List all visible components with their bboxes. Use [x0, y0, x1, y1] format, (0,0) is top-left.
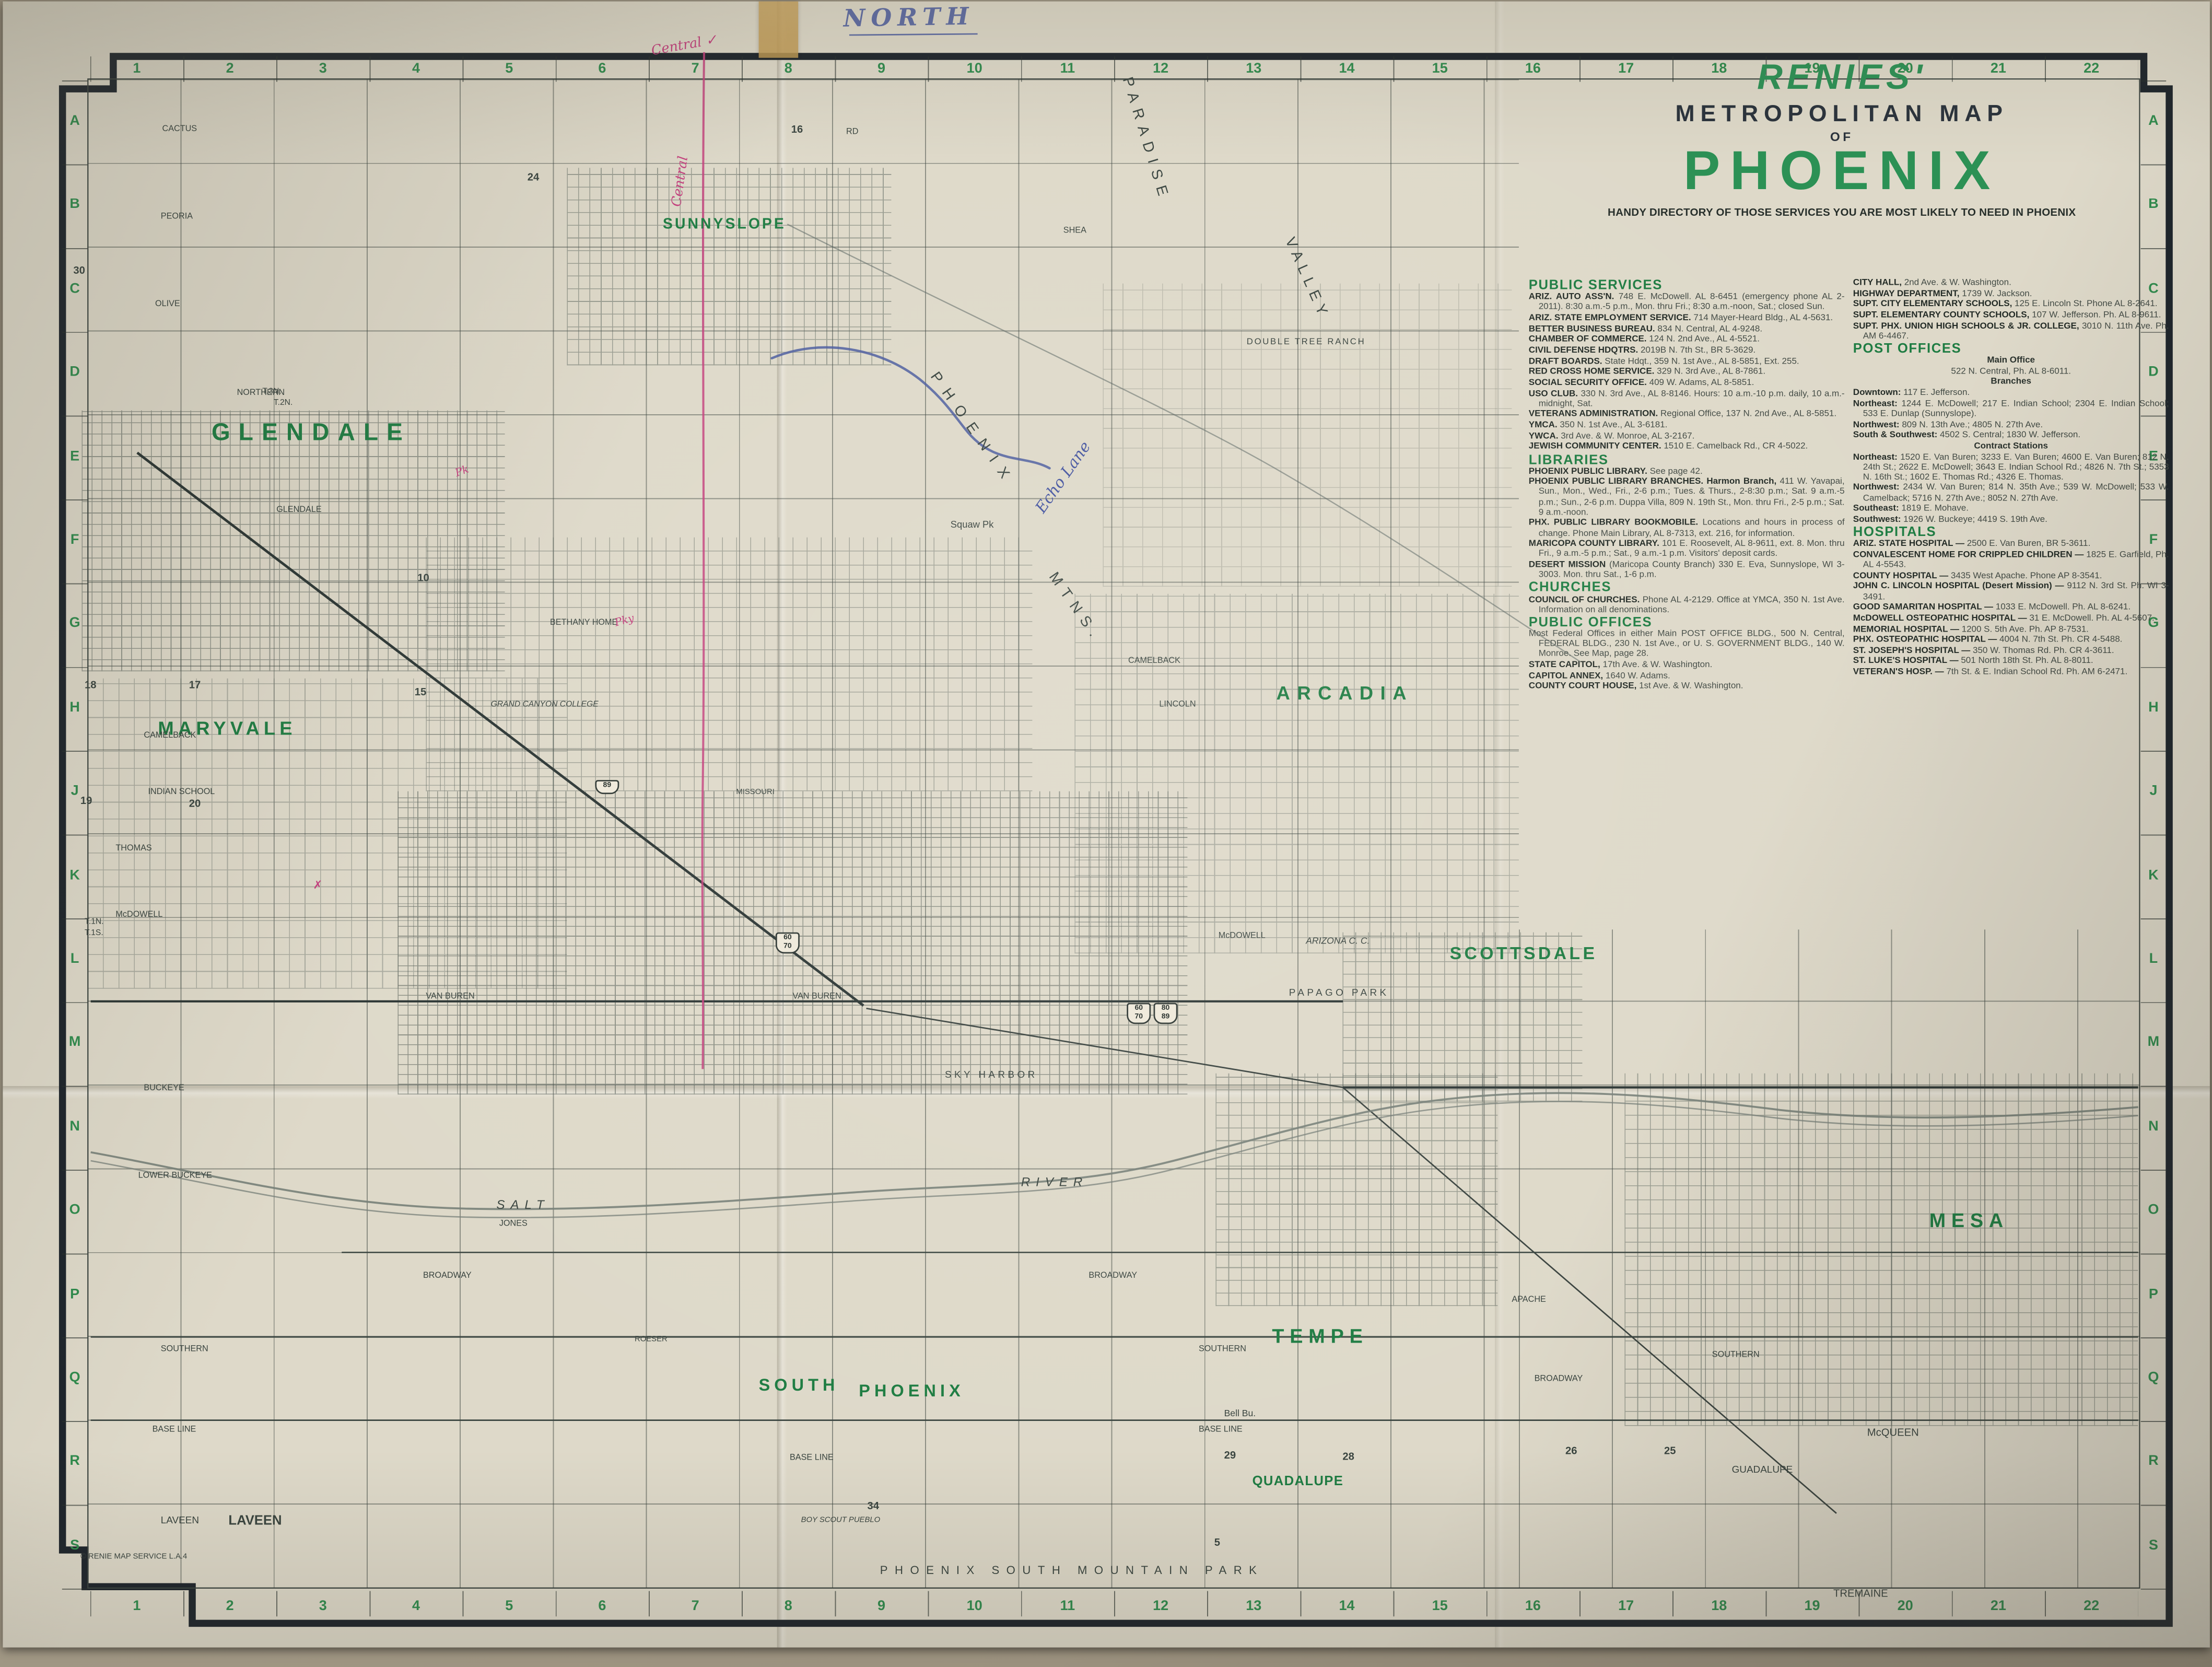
- street-label-lower-buckeye: LOWER BUCKEYE: [138, 1172, 212, 1181]
- grid-letter-right-H: H: [2148, 700, 2159, 716]
- directory-entry: Southwest: 1926 W. Buckeye; 4419 S. 19th…: [1853, 515, 2169, 524]
- street-label-van-buren: VAN BUREN: [792, 993, 841, 1001]
- grid-letter-right-M: M: [2148, 1035, 2160, 1051]
- section-number-17: 17: [189, 679, 201, 691]
- grid-number-top-2: 2: [226, 61, 234, 77]
- directory-section-title: PUBLIC OFFICES: [1529, 617, 1845, 627]
- grid-letter-right-O: O: [2148, 1203, 2159, 1218]
- directory-entry: Most Federal Offices in either Main POST…: [1529, 629, 1845, 659]
- section-number-28: 28: [1342, 1450, 1354, 1463]
- grid-letter-left-Q: Q: [69, 1370, 80, 1386]
- blue-hand-drawn-route: [772, 347, 1050, 468]
- street-label-cactus: CACTUS: [162, 125, 197, 134]
- street-label-buckeye: BUCKEYE: [144, 1085, 184, 1093]
- section-number-10: 10: [417, 572, 429, 584]
- grid-letter-left-P: P: [70, 1287, 79, 1302]
- grid-letter-left-K: K: [69, 868, 80, 883]
- grid-letter-left-A: A: [69, 113, 80, 129]
- directory-entry: CIVIL DEFENSE HDQTRS. 2019B N. 7th St., …: [1529, 345, 1845, 355]
- directory-entry: MEMORIAL HOSPITAL — 1200 S. 5th Ave. Ph.…: [1853, 624, 2169, 634]
- city-label-tempe: TEMPE: [1272, 1324, 1368, 1347]
- directory-entry: Northeast: 1520 E. Van Buren; 3233 E. Va…: [1853, 452, 2169, 482]
- feature-label-bell-bu-: Bell Bu.: [1224, 1409, 1256, 1419]
- section-number-29: 29: [1224, 1449, 1236, 1461]
- city-label-quadalupe: QUADALUPE: [1253, 1474, 1344, 1490]
- section-number-34: 34: [868, 1499, 880, 1512]
- directory-entry: ST. LUKE'S HOSPITAL — 501 North 18th St.…: [1853, 657, 2169, 667]
- directory-entry: Northwest: 809 N. 13th Ave.; 4805 N. 27t…: [1853, 419, 2169, 429]
- city-label-phoenix: PHOENIX: [859, 1381, 965, 1401]
- feature-label-phoenix-south-mountain-park: PHOENIX SOUTH MOUNTAIN PARK: [880, 1564, 1264, 1577]
- feature-label-squaw-pk: Squaw Pk: [951, 520, 994, 530]
- grid-number-bottom-9: 9: [877, 1599, 885, 1614]
- brand-name: RENIES': [1523, 58, 2160, 99]
- directory-entry: South & Southwest: 4502 S. Central; 1830…: [1853, 430, 2169, 440]
- grid-number-bottom-10: 10: [967, 1599, 982, 1614]
- grid-number-bottom-18: 18: [1711, 1599, 1727, 1614]
- grid-number-top-7: 7: [692, 61, 699, 77]
- directory-entry: CONVALESCENT HOME FOR CRIPPLED CHILDREN …: [1853, 550, 2169, 570]
- street-label-broadway: BROADWAY: [423, 1272, 472, 1280]
- directory-entry: DRAFT BOARDS. State Hdqt., 359 N. 1st Av…: [1529, 356, 1845, 366]
- highway-shield-60-70: 6070: [1127, 1003, 1151, 1024]
- directory-entry: VETERANS ADMINISTRATION. Regional Office…: [1529, 410, 1845, 419]
- directory-entry: McDOWELL OSTEOPATHIC HOSPITAL — 31 E. Mc…: [1853, 613, 2169, 623]
- city-label-sunnyslope: SUNNYSLOPE: [663, 216, 786, 232]
- pink-x-mark: ✗: [313, 879, 322, 891]
- title-block: RENIES' METROPOLITAN MAP OF PHOENIX HAND…: [1523, 58, 2160, 219]
- feature-label-papago-park: PAPAGO PARK: [1289, 989, 1389, 999]
- left-margin-ticks: [62, 80, 88, 1590]
- grid-letter-left-C: C: [69, 281, 80, 297]
- feature-label-sky-harbor: SKY HARBOR: [945, 1070, 1038, 1080]
- street-label-bethany-home: BETHANY HOME: [550, 619, 617, 627]
- grid-number-bottom-14: 14: [1339, 1599, 1354, 1614]
- section-number-26: 26: [1565, 1444, 1577, 1457]
- salt-river-south-bank: [91, 1101, 2138, 1217]
- street-label-t-2n-: T.2N.: [274, 399, 293, 407]
- feature-label-tremaine: TREMAINE: [1833, 1587, 1888, 1600]
- grid-letter-right-N: N: [2148, 1119, 2159, 1135]
- grid-letter-right-R: R: [2148, 1454, 2159, 1470]
- street-label-base-line: BASE LINE: [153, 1426, 196, 1435]
- grid-number-bottom-4: 4: [412, 1599, 420, 1614]
- city-label-arcadia: ARCADIA: [1277, 683, 1414, 704]
- directory-entry: PHOENIX PUBLIC LIBRARY. See page 42.: [1529, 467, 1845, 476]
- copyright-note: © RENIE MAP SERVICE L.A.4: [80, 1553, 187, 1561]
- directory-entry: Northwest: 2434 W. Van Buren; 814 N. 35t…: [1853, 483, 2169, 504]
- directory-entry: STATE CAPITOL, 17th Ave. & W. Washington…: [1529, 660, 1845, 670]
- directory-entry: PHX. PUBLIC LIBRARY BOOKMOBILE. Location…: [1529, 518, 1845, 539]
- directory-subtitle: HANDY DIRECTORY OF THOSE SERVICES YOU AR…: [1523, 206, 2160, 218]
- feature-label-mcqueen: McQUEEN: [1867, 1426, 1919, 1439]
- masking-tape: [759, 2, 799, 58]
- directory-entry: SUPT. ELEMENTARY COUNTY SCHOOLS, 107 W. …: [1853, 310, 2169, 320]
- north-handwriting: NORTH: [843, 3, 975, 33]
- grid-letter-right-S: S: [2149, 1538, 2158, 1554]
- grid-number-bottom-12: 12: [1153, 1599, 1168, 1614]
- directory-entry: YMCA. 350 N. 1st Ave., AL 3-6181.: [1529, 421, 1845, 430]
- feature-label-double-tree-ranch: DOUBLE TREE RANCH: [1247, 337, 1366, 347]
- title-line1: METROPOLITAN MAP: [1523, 101, 2160, 128]
- salt-river-north-bank: [91, 1093, 2138, 1209]
- directory-section-title: POST OFFICES: [1853, 344, 2169, 354]
- grid-number-top-4: 4: [412, 61, 420, 77]
- grid-number-top-13: 13: [1246, 61, 1261, 77]
- map-linework: [3, 2, 2209, 1648]
- bottom-margin-ticks: [90, 1591, 2138, 1617]
- street-label-southern: SOUTHERN: [161, 1346, 208, 1354]
- directory-entry: RED CROSS HOME SERVICE. 329 N. 3rd Ave.,…: [1529, 367, 1845, 377]
- street-label-t-3n-: T.3N.: [262, 388, 282, 397]
- street-label-camelback: CAMELBACK: [1128, 657, 1180, 666]
- grid-letter-left-E: E: [70, 449, 79, 464]
- street-label-mcdowell: McDOWELL: [115, 911, 162, 919]
- grid-number-top-5: 5: [505, 61, 513, 77]
- grid-number-bottom-1: 1: [133, 1599, 141, 1614]
- street-label-indian-school: INDIAN SCHOOL: [148, 788, 215, 797]
- grid-number-bottom-17: 17: [1618, 1599, 1634, 1614]
- directory-entry: 522 N. Central, Ph. AL 8-6011.: [1853, 366, 2169, 376]
- grid-letter-left-R: R: [69, 1454, 80, 1470]
- section-number-24: 24: [528, 171, 540, 183]
- grid-letter-left-F: F: [71, 532, 79, 548]
- grid-letter-right-Q: Q: [2148, 1370, 2159, 1386]
- section-number-19: 19: [80, 794, 92, 807]
- section-number-16: 16: [791, 123, 803, 135]
- arizona-canal: [787, 224, 1579, 661]
- directory-entry: COUNTY COURT HOUSE, 1st Ave. & W. Washin…: [1529, 682, 1845, 692]
- street-label-broadway: BROADWAY: [1089, 1272, 1137, 1280]
- grid-number-top-12: 12: [1153, 61, 1168, 77]
- street-label-roeser: ROESER: [635, 1336, 668, 1344]
- grid-letter-left-H: H: [69, 700, 80, 716]
- grid-letter-right-J: J: [2149, 784, 2157, 799]
- directory-entry: GOOD SAMARITAN HOSPITAL — 1033 E. McDowe…: [1853, 602, 2169, 612]
- section-number-30: 30: [73, 264, 85, 276]
- city-label-glendale: GLENDALE: [212, 419, 411, 447]
- grid-letter-left-B: B: [69, 197, 80, 213]
- feature-label-arizona-c-c-: ARIZONA C. C.: [1306, 937, 1370, 947]
- grid-letter-left-D: D: [69, 365, 80, 380]
- highway-number: 89: [1155, 1013, 1176, 1021]
- directory-entry: CITY HALL, 2nd Ave. & W. Washington.: [1853, 278, 2169, 288]
- highway-number: 89: [596, 783, 618, 791]
- grid-letter-left-N: N: [69, 1119, 80, 1135]
- directory-section-title: PUBLIC SERVICES: [1529, 281, 1845, 290]
- directory-entry: Southeast: 1819 E. Mohave.: [1853, 504, 2169, 514]
- section-number-18: 18: [85, 679, 97, 691]
- directory-entry: MARICOPA COUNTY LIBRARY. 101 E. Roosevel…: [1529, 539, 1845, 559]
- highway-shield-89: 89: [595, 780, 619, 794]
- grid-number-bottom-7: 7: [692, 1599, 699, 1614]
- directory-entry: ST. JOSEPH'S HOSPITAL — 350 W. Thomas Rd…: [1853, 646, 2169, 656]
- directory-entry: Contract Stations: [1853, 441, 2169, 451]
- street-label-missouri: MISSOURI: [736, 788, 774, 797]
- highway-number: 70: [1128, 1013, 1150, 1021]
- highway-shield-80-89: 8089: [1154, 1003, 1178, 1024]
- grid-number-top-14: 14: [1339, 61, 1354, 77]
- grid-number-top-11: 11: [1060, 61, 1075, 77]
- grid-letter-left-G: G: [69, 616, 80, 632]
- grid-letter-left-L: L: [71, 951, 79, 967]
- directory-section-title: HOSPITALS: [1853, 528, 2169, 538]
- directory-entry: Main Office: [1853, 356, 2169, 366]
- street-label-rd: RD: [846, 129, 858, 137]
- grid-number-bottom-3: 3: [319, 1599, 327, 1614]
- grid-number-bottom-21: 21: [1991, 1599, 2006, 1614]
- directory-entry: DESERT MISSION (Maricopa County Branch) …: [1529, 560, 1845, 580]
- directory-entry: BETTER BUSINESS BUREAU. 834 N. Central, …: [1529, 324, 1845, 334]
- grid-letter-right-P: P: [2149, 1287, 2158, 1302]
- street-label-southern: SOUTHERN: [1199, 1346, 1246, 1354]
- directory-entry: CHAMBER OF COMMERCE. 124 N. 2nd Ave., AL…: [1529, 335, 1845, 345]
- grid-letter-left-O: O: [69, 1203, 80, 1218]
- directory-entry: USO CLUB. 330 N. 3rd Ave., AL 8-8146. Ho…: [1529, 389, 1845, 409]
- grid-number-bottom-13: 13: [1246, 1599, 1261, 1614]
- street-label-southern: SOUTHERN: [1712, 1351, 1760, 1360]
- street-label-broadway: BROADWAY: [1535, 1375, 1583, 1384]
- grid-number-bottom-5: 5: [505, 1599, 513, 1614]
- street-label-lincoln: LINCOLN: [1159, 701, 1196, 709]
- directory-section-title: CHURCHES: [1529, 583, 1845, 593]
- grid-letter-right-L: L: [2149, 951, 2158, 967]
- directory-entry: JEWISH COMMUNITY CENTER. 1510 E. Camelba…: [1529, 442, 1845, 452]
- street-label-base-line: BASE LINE: [1199, 1426, 1243, 1435]
- directory-entry: PHX. OSTEOPATHIC HOSPITAL — 4004 N. 7th …: [1853, 635, 2169, 645]
- grid-number-bottom-15: 15: [1432, 1599, 1448, 1614]
- grid-number-bottom-16: 16: [1525, 1599, 1541, 1614]
- grid-letter-left-S: S: [70, 1538, 79, 1554]
- street-label-t-1s-: T.1S.: [85, 929, 103, 938]
- highway-number: 70: [777, 943, 799, 951]
- directory-entry: SUPT. PHX. UNION HIGH SCHOOLS & JR. COLL…: [1853, 321, 2169, 342]
- directory-entry: SUPT. CITY ELEMENTARY SCHOOLS, 125 E. Li…: [1853, 299, 2169, 309]
- street-label-olive: OLIVE: [155, 300, 180, 309]
- grid-number-top-6: 6: [598, 61, 606, 77]
- directory-entry: COUNTY HOSPITAL — 3435 West Apache. Phon…: [1853, 571, 2169, 581]
- directory-entry: JOHN C. LINCOLN HOSPITAL (Desert Mission…: [1853, 581, 2169, 602]
- street-label-base-line: BASE LINE: [790, 1454, 834, 1463]
- grid-letter-right-K: K: [2148, 868, 2159, 883]
- section-number-15: 15: [415, 685, 427, 698]
- grid-number-bottom-8: 8: [785, 1599, 792, 1614]
- grid-number-top-8: 8: [785, 61, 792, 77]
- directory-entry: PHOENIX PUBLIC LIBRARY BRANCHES. Harmon …: [1529, 477, 1845, 517]
- railroad-line: [867, 1008, 1836, 1513]
- pink-central-ave-line: [703, 52, 704, 1069]
- section-number-20: 20: [189, 797, 201, 810]
- directory-entry: COUNCIL OF CHURCHES. Phone AL 4-2129. Of…: [1529, 594, 1845, 615]
- grid-number-bottom-2: 2: [226, 1599, 234, 1614]
- map-photo: 12345678910111213141516171819202122 1234…: [0, 0, 2212, 1667]
- directory-section-title: LIBRARIES: [1529, 455, 1845, 465]
- city-label-mesa: MESA: [1929, 1209, 2009, 1231]
- directory-entry: Downtown: 117 E. Jefferson.: [1853, 388, 2169, 398]
- street-label-glendale: GLENDALE: [276, 506, 321, 515]
- grid-number-top-1: 1: [133, 61, 141, 77]
- directory-entry: ARIZ. STATE HOSPITAL — 2500 E. Van Buren…: [1853, 539, 2169, 549]
- street-label-shea: SHEA: [1063, 227, 1086, 236]
- grid-number-top-9: 9: [877, 61, 885, 77]
- street-label-t-1n-: T.1N.: [85, 918, 104, 927]
- grid-number-top-15: 15: [1432, 61, 1448, 77]
- directory-left-column: PUBLIC SERVICESARIZ. AUTO ASS'N. 748 E. …: [1529, 278, 1845, 693]
- street-label-thomas: THOMAS: [115, 845, 151, 853]
- street-label-van-buren: VAN BUREN: [426, 993, 474, 1001]
- section-number-25: 25: [1664, 1444, 1676, 1457]
- street-label-mcdowell: McDOWELL: [1219, 932, 1266, 941]
- city-label-scottsdale: SCOTTSDALE: [1450, 943, 1598, 963]
- grid-letter-left-M: M: [69, 1035, 81, 1051]
- directory-entry: VETERAN'S HOSP. — 7th St. & E. Indian Sc…: [1853, 667, 2169, 677]
- feature-label-salt: SALT: [496, 1197, 549, 1211]
- city-label-south: SOUTH: [759, 1375, 839, 1395]
- grid-number-bottom-11: 11: [1060, 1599, 1075, 1614]
- directory-entry: ARIZ. AUTO ASS'N. 748 E. McDowell. AL 8-…: [1529, 292, 1845, 312]
- directory-entry: HIGHWAY DEPARTMENT, 1739 W. Jackson.: [1853, 289, 2169, 299]
- street-label-peoria: PEORIA: [161, 213, 193, 222]
- street-label-apache: APACHE: [1512, 1296, 1546, 1304]
- highway-shield-60-70: 6070: [776, 932, 800, 954]
- section-number-5: 5: [1214, 1536, 1220, 1548]
- grid-number-top-10: 10: [967, 61, 982, 77]
- directory-entry: YWCA. 3rd Ave. & W. Monroe, AL 3-2167.: [1529, 431, 1845, 441]
- feature-label-guadalupe: GUADALUPE: [1732, 1465, 1793, 1475]
- directory-entry: ARIZ. STATE EMPLOYMENT SERVICE. 714 Maye…: [1529, 313, 1845, 323]
- directory-entry: CAPITOL ANNEX, 1640 W. Adams.: [1529, 671, 1845, 681]
- directory-entry: Branches: [1853, 377, 2169, 387]
- feature-label-grand-canyon-college: GRAND CANYON COLLEGE: [491, 701, 599, 709]
- directory-entry: SOCIAL SECURITY OFFICE. 409 W. Adams, AL…: [1529, 378, 1845, 388]
- title-city: PHOENIX: [1523, 144, 2160, 200]
- directory-entry: Northeast: 1244 E. McDowell; 217 E. Indi…: [1853, 399, 2169, 419]
- feature-label-laveen: LAVEEN: [228, 1513, 282, 1529]
- grid-number-bottom-6: 6: [598, 1599, 606, 1614]
- feature-label-laveen: LAVEEN: [161, 1517, 199, 1526]
- street-label-jones: JONES: [499, 1220, 528, 1229]
- map-paper: 12345678910111213141516171819202122 1234…: [3, 2, 2209, 1648]
- feature-label-river: RIVER: [1021, 1175, 1088, 1189]
- grid-number-bottom-19: 19: [1804, 1599, 1820, 1614]
- grid-number-bottom-22: 22: [2084, 1599, 2099, 1614]
- directory-right-column: CITY HALL, 2nd Ave. & W. Washington.HIGH…: [1853, 278, 2169, 678]
- grid-number-bottom-20: 20: [1898, 1599, 1913, 1614]
- grid-letter-left-J: J: [71, 784, 79, 799]
- feature-label-boy-scout-pueblo: BOY SCOUT PUEBLO: [801, 1517, 881, 1525]
- grid-number-top-3: 3: [319, 61, 327, 77]
- street-label-camelback: CAMELBACK: [144, 732, 196, 740]
